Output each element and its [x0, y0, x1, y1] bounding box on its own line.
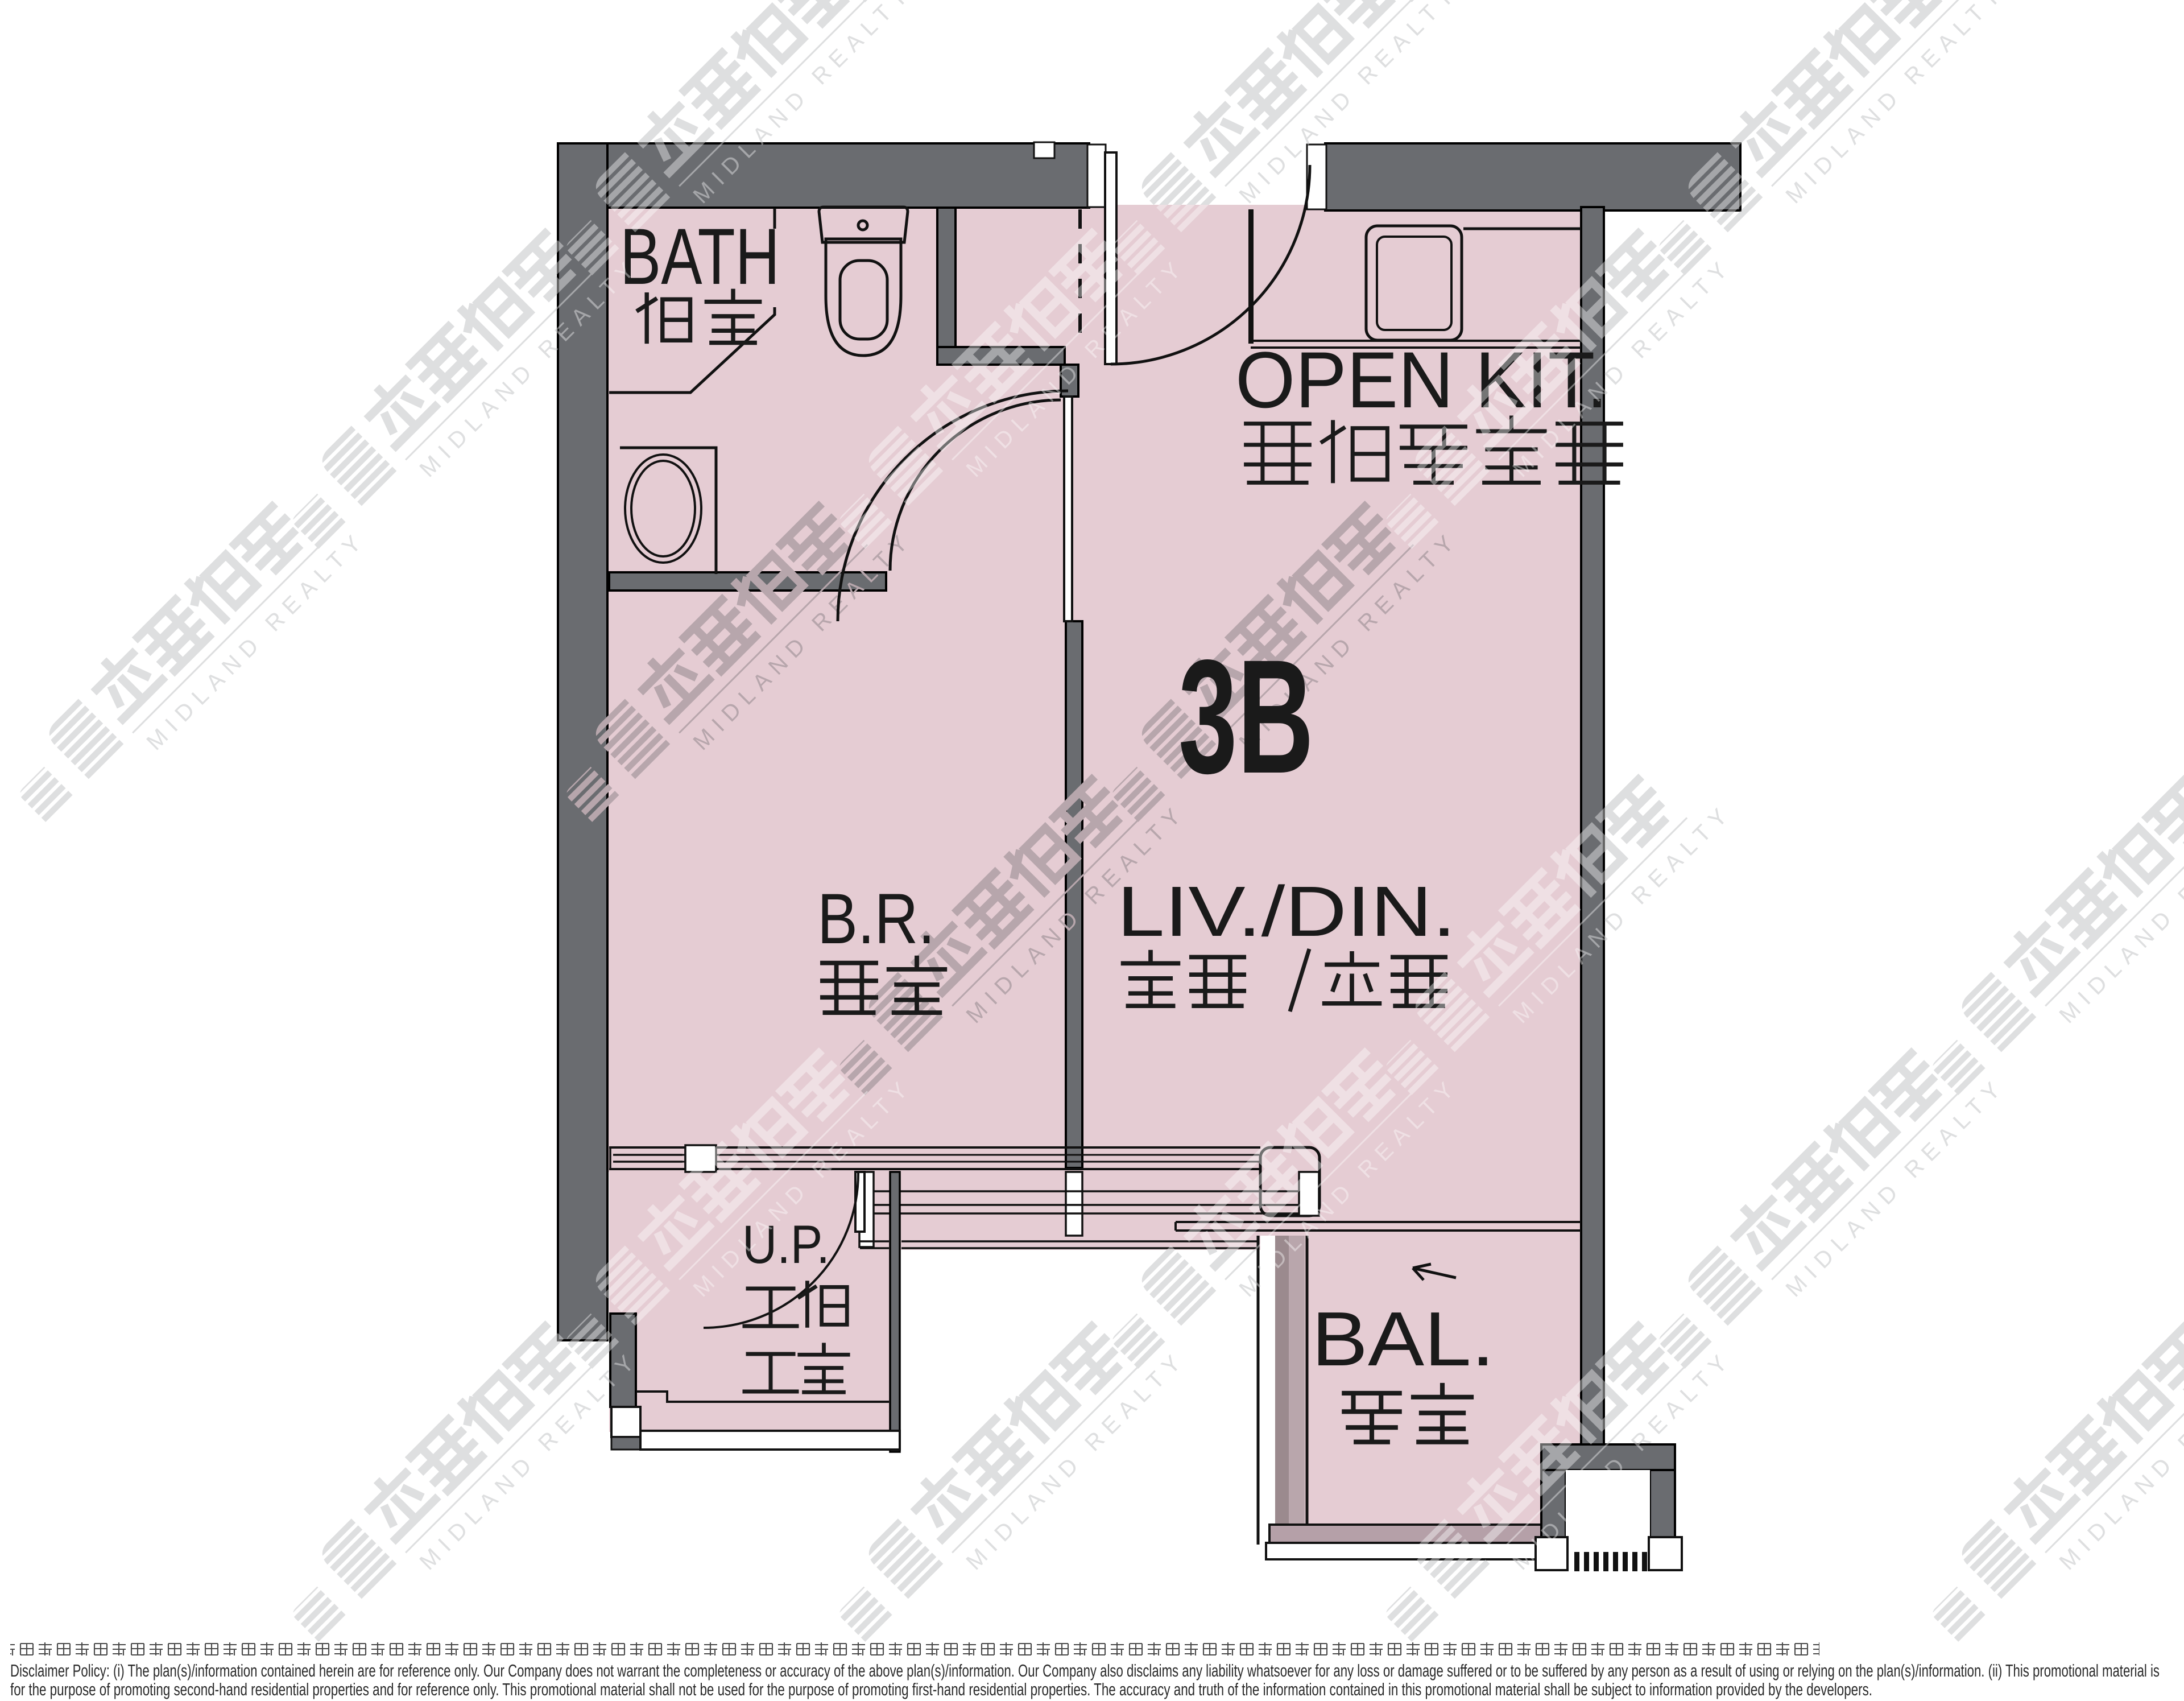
- svg-text:BAL.: BAL.: [1312, 1296, 1495, 1382]
- svg-text:Disclaimer Policy: (i) The pla: Disclaimer Policy: (i) The plan(s)/infor…: [10, 1661, 2160, 1681]
- svg-text:B.R.: B.R.: [817, 880, 935, 959]
- svg-text:for the purpose of promoting s: for the purpose of promoting second-hand…: [10, 1680, 1872, 1699]
- svg-text:LIV./DIN.: LIV./DIN.: [1117, 872, 1456, 951]
- svg-text:BATH: BATH: [620, 212, 780, 301]
- svg-text:OPEN KIT.: OPEN KIT.: [1235, 335, 1608, 424]
- svg-text:3B: 3B: [1178, 626, 1314, 807]
